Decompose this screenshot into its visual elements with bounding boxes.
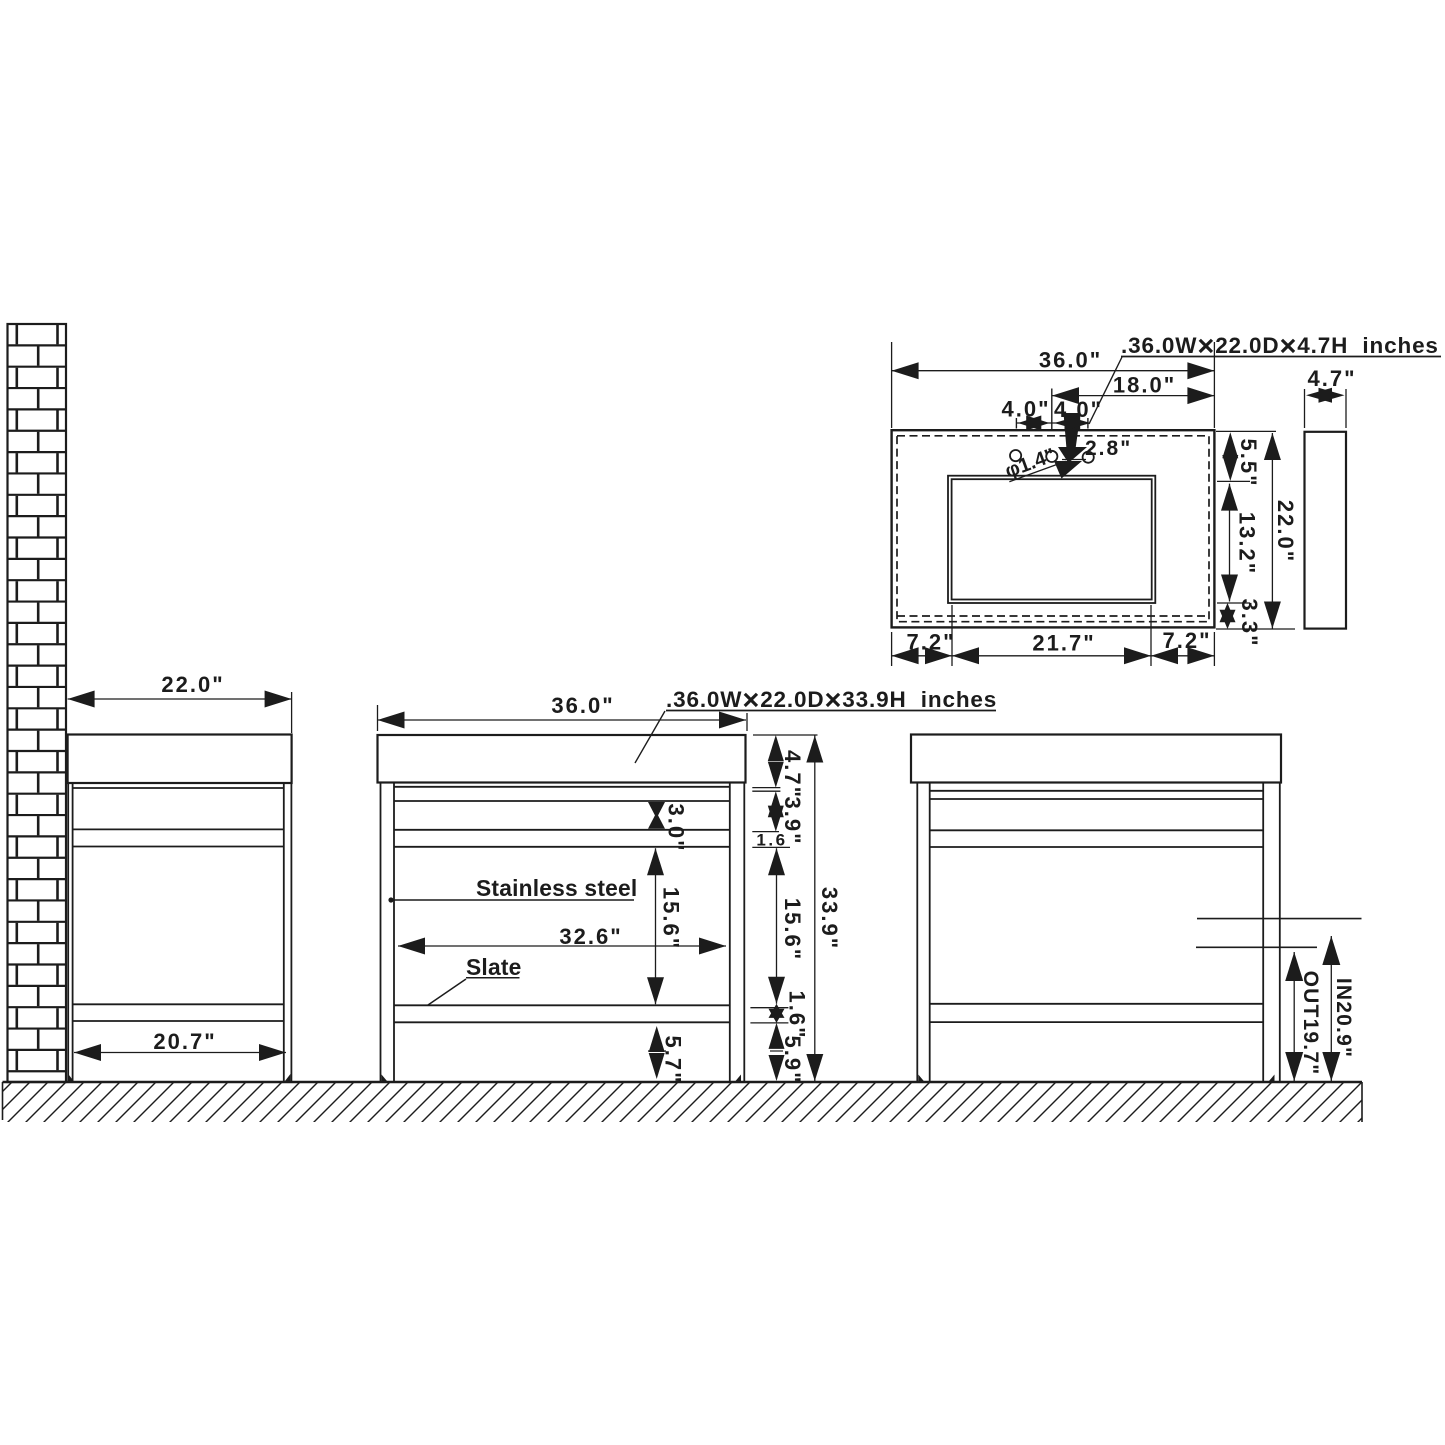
svg-text:3.3": 3.3" xyxy=(1237,598,1262,647)
svg-text:Stainless steel: Stainless steel xyxy=(476,875,637,901)
svg-text:3.0": 3.0" xyxy=(664,803,689,852)
svg-text:7.2": 7.2" xyxy=(1162,628,1211,653)
svg-text:4.0": 4.0" xyxy=(1054,397,1103,422)
svg-text:OUT19.7": OUT19.7" xyxy=(1299,971,1322,1076)
svg-text:IN20.9": IN20.9" xyxy=(1332,978,1355,1058)
svg-text:5.9": 5.9" xyxy=(780,1035,805,1084)
svg-text:36.0": 36.0" xyxy=(1039,348,1102,373)
svg-text:32.6": 32.6" xyxy=(559,924,622,949)
svg-text:5.5": 5.5" xyxy=(1236,438,1261,487)
svg-text:.36.0W×22.0D×33.9H inches: .36.0W×22.0D×33.9H inches xyxy=(666,685,997,717)
svg-text:1.6: 1.6 xyxy=(756,831,787,850)
svg-text:4.0": 4.0" xyxy=(1001,397,1050,422)
svg-text:22.0": 22.0" xyxy=(161,672,224,697)
svg-text:1.6": 1.6" xyxy=(785,990,810,1039)
svg-text:5.7": 5.7" xyxy=(661,1035,686,1084)
svg-text:4.7": 4.7" xyxy=(1307,366,1356,391)
svg-text:Slate: Slate xyxy=(466,954,522,980)
svg-text:7.2": 7.2" xyxy=(906,630,955,655)
svg-text:15.6": 15.6" xyxy=(659,887,684,950)
svg-text:36.0": 36.0" xyxy=(551,693,614,718)
svg-text:13.2": 13.2" xyxy=(1235,512,1260,575)
svg-text:.36.0W×22.0D×4.7H inches: .36.0W×22.0D×4.7H inches xyxy=(1121,331,1439,363)
svg-text:4.7": 4.7" xyxy=(780,750,805,799)
svg-text:15.6": 15.6" xyxy=(780,898,805,961)
svg-text:20.7": 20.7" xyxy=(153,1029,216,1054)
svg-text:21.7": 21.7" xyxy=(1032,631,1095,656)
svg-text:22.0": 22.0" xyxy=(1273,500,1298,563)
svg-text:2.8": 2.8" xyxy=(1085,437,1132,460)
svg-text:33.9": 33.9" xyxy=(817,887,842,950)
svg-text:18.0": 18.0" xyxy=(1113,373,1176,398)
